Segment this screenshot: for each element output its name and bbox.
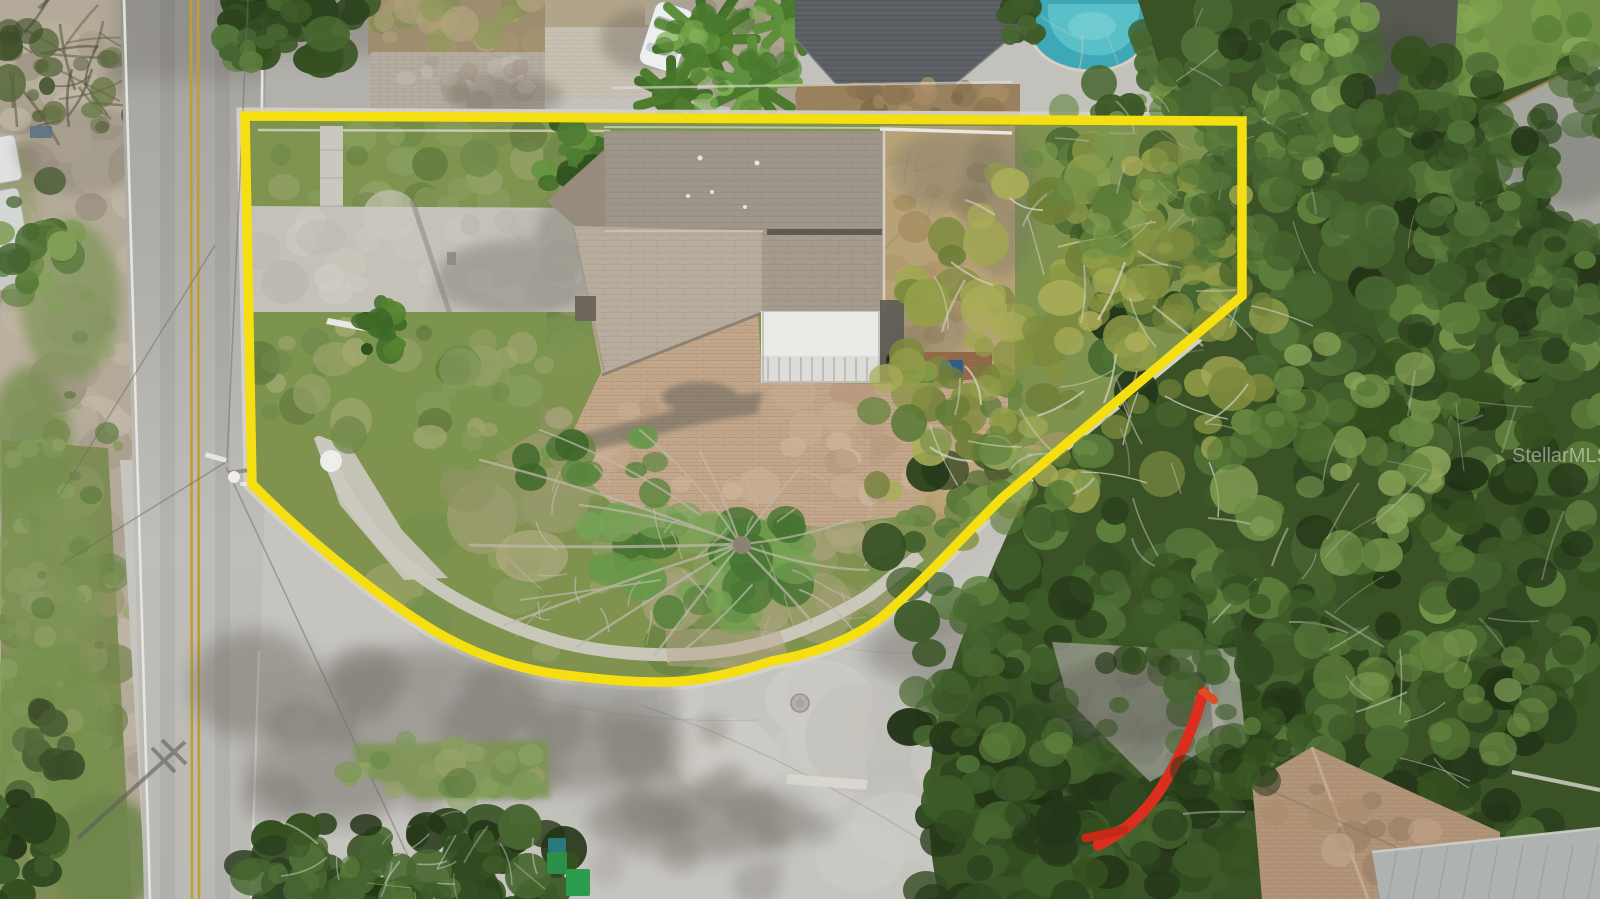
svg-text:StellarMLS: StellarMLS <box>1512 445 1600 467</box>
